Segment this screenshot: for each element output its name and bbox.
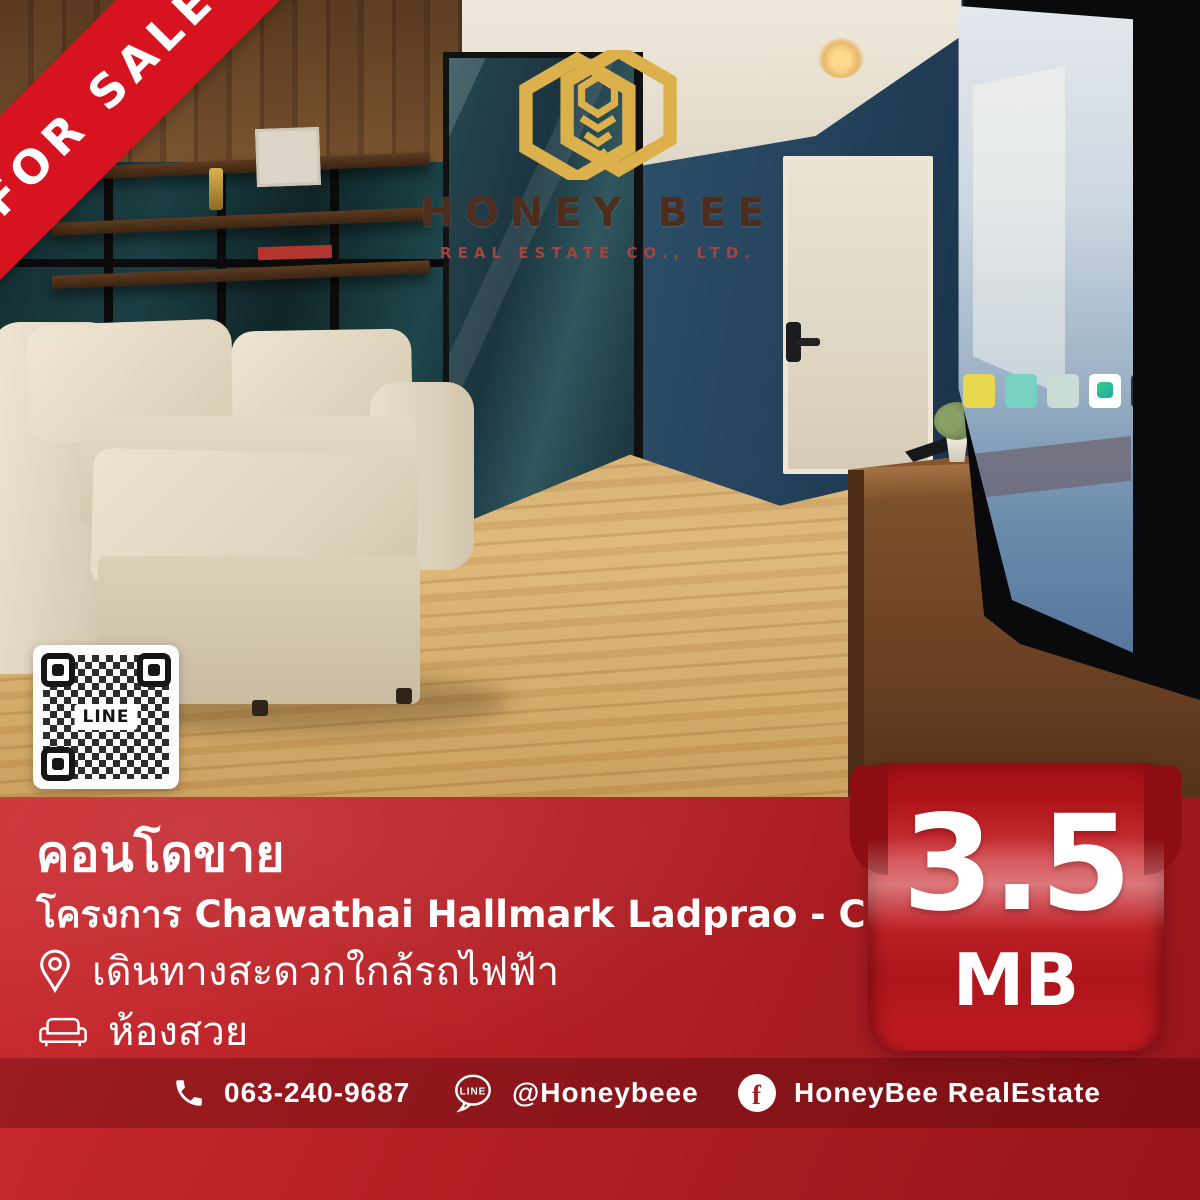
feature-location: เดินทางสะดวกใกล้รถไฟฟ้า [38,939,559,1003]
qr-finder [41,747,75,781]
facebook-name: HoneyBee RealEstate [794,1077,1101,1109]
hexagon-bee-icon [493,50,703,180]
logo-name: HONEY BEE [398,190,798,236]
honeybee-logo: HONEY BEE REAL ESTATE CO., LTD. [398,50,798,262]
line-icon: LINE [452,1072,494,1114]
line-qr-code: LINE [33,645,179,789]
price-unit: MB [953,944,1080,1016]
shelf-decor-book [258,245,332,261]
feature-text: เดินทางสะดวกใกล้รถไฟฟ้า [92,939,559,1003]
ceiling-light [818,38,864,78]
qr-line-label: LINE [75,704,138,730]
qr-finder [137,653,171,687]
logo-subtitle: REAL ESTATE CO., LTD. [398,244,798,262]
digital-door-lock [786,322,801,362]
listing-title: คอนโดขาย [36,815,285,894]
phone-number: 063-240-9687 [224,1077,410,1109]
contact-phone: 063-240-9687 [172,1058,410,1128]
contact-facebook: f HoneyBee RealEstate [738,1058,1101,1128]
feature-text: ห้องสวย [108,999,248,1063]
phone-icon [172,1076,206,1110]
price-value: 3.5 [902,798,1130,930]
shelf-decor-frame [255,127,321,187]
poster: FOR SALE HONEY BEE REAL ESTATE CO., LTD.… [0,0,1200,1200]
location-pin-icon [38,948,72,994]
line-icon-label: LINE [460,1086,487,1097]
shelf-decor-figurine [209,168,223,210]
contact-line: LINE @Honeybeee [452,1058,699,1128]
price-badge: 3.5 MB [868,763,1164,1051]
sofa-leg [252,700,268,716]
contact-bar: 063-240-9687 LINE @Honeybeee f HoneyBee … [0,1058,1200,1128]
feature-room: ห้องสวย [38,999,248,1063]
facebook-icon: f [738,1074,776,1112]
sofa-leg [396,688,412,704]
qr-finder [41,653,75,687]
listing-info-panel: คอนโดขาย โครงการ Chawathai Hallmark Ladp… [0,797,1200,1200]
line-id: @Honeybeee [512,1077,699,1109]
facebook-letter: f [752,1080,762,1111]
sofa-icon [38,1014,88,1048]
wetv-app-tile [1089,374,1121,408]
entrance-door [783,156,933,474]
